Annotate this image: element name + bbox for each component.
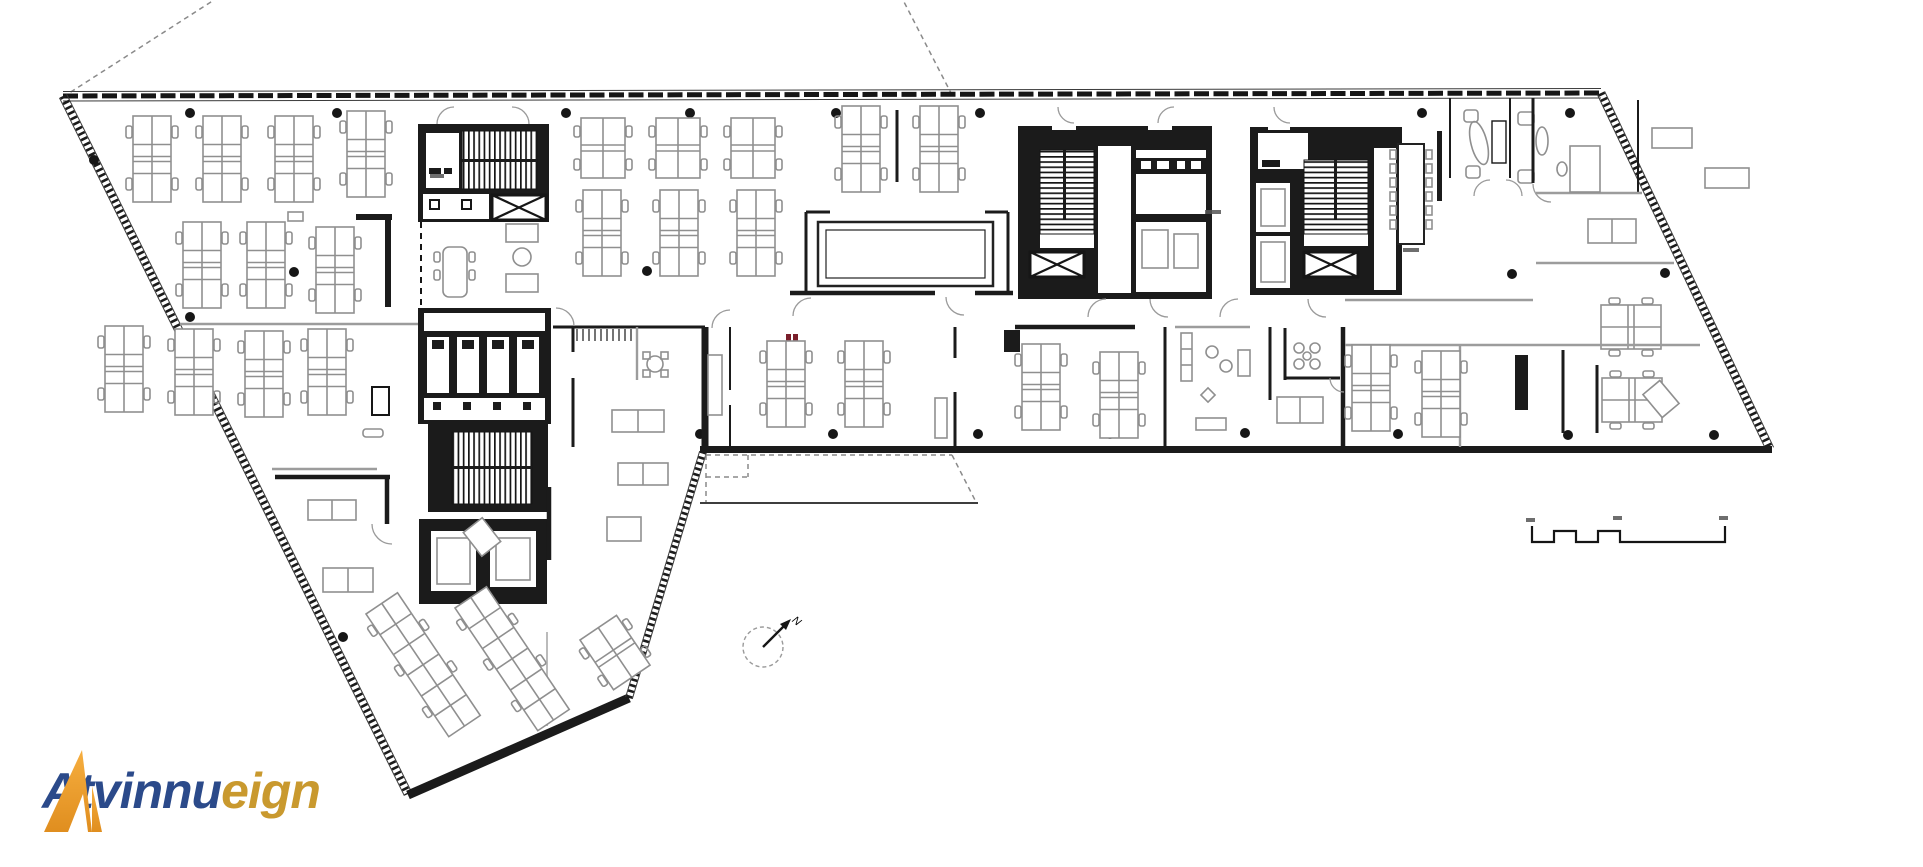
- desk-cluster: [98, 326, 150, 412]
- site-boundary-lines: [63, 0, 952, 97]
- desk-cluster: [838, 341, 890, 427]
- floor-plan-page: N Atvinnueign: [0, 0, 1923, 867]
- open-office-southwest: [98, 324, 418, 437]
- desk-cluster: [238, 331, 290, 417]
- desk-cluster: [340, 111, 392, 197]
- stair-south: [428, 424, 548, 512]
- offices-east: [1533, 98, 1749, 433]
- desk-cluster: [574, 118, 632, 178]
- desk-cluster: [913, 106, 965, 192]
- logo-text-secondary: eign: [221, 763, 320, 819]
- desk-cluster: [1415, 351, 1467, 437]
- desk-cluster: [1601, 298, 1661, 356]
- desk-cluster: [168, 329, 220, 415]
- wc-block: [418, 308, 551, 424]
- meeting-rooms-south: [612, 330, 1528, 485]
- desk-cluster: [730, 190, 782, 276]
- scale-bar: [1526, 516, 1728, 542]
- elevator-icon: [1030, 252, 1084, 277]
- stair-core-center: [1018, 123, 1212, 299]
- conference-room: [790, 212, 1013, 293]
- desk-cluster: [176, 222, 228, 308]
- desk-cluster: [1345, 345, 1397, 431]
- north-label: N: [790, 614, 804, 628]
- desk-cluster: [301, 329, 353, 415]
- terrace-outline: [700, 455, 978, 503]
- desk-cluster: [574, 611, 656, 693]
- desk-cluster: [1015, 344, 1067, 430]
- open-office-northwest: [126, 111, 392, 313]
- pinwheel-table: [1294, 343, 1320, 369]
- conference-table: [818, 222, 993, 286]
- floor-plan-canvas: N: [0, 0, 1923, 867]
- elevator-icon: [492, 195, 546, 220]
- desk-cluster: [576, 190, 628, 276]
- desk-cluster: [1093, 352, 1145, 438]
- north-arrow: N: [743, 614, 803, 667]
- desk-cluster: [649, 118, 707, 178]
- pantry-breakout: [434, 224, 538, 297]
- desk-cluster: [309, 227, 361, 313]
- elevator-icon: [1304, 252, 1358, 277]
- desk-cluster: [126, 116, 178, 202]
- logo: Atvinnueign: [42, 748, 320, 834]
- triangle-a-logo-icon: [42, 748, 104, 834]
- desk-cluster: [653, 190, 705, 276]
- desk-cluster: [268, 116, 320, 202]
- desk-cluster: [240, 222, 292, 308]
- desk-cluster: [835, 106, 887, 192]
- desk-cluster: [724, 118, 782, 178]
- desk-cluster: [196, 116, 248, 202]
- curtain-wall-north: [63, 89, 1601, 102]
- desk-cluster: [760, 341, 812, 427]
